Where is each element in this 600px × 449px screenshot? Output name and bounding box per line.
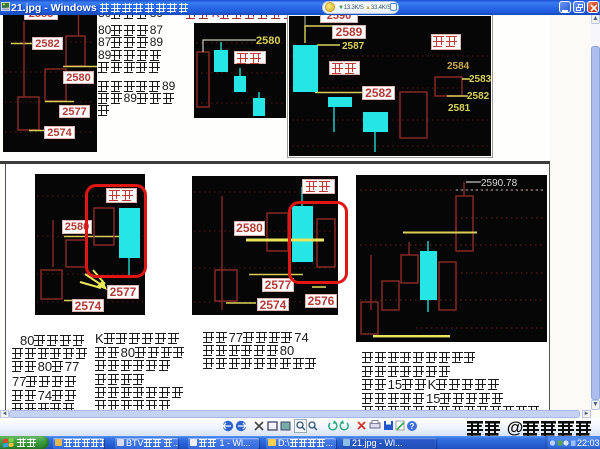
svg-text:?: ? xyxy=(410,422,415,431)
